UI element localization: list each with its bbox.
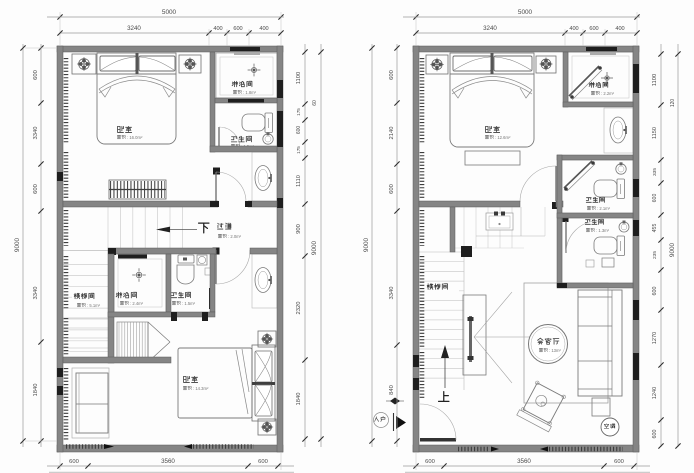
svg-text:: 12.6m²: : 12.6m² xyxy=(495,135,511,140)
svg-text:600: 600 xyxy=(389,70,395,80)
svg-text:3240: 3240 xyxy=(483,25,497,32)
svg-text:9000: 9000 xyxy=(669,242,676,257)
svg-text:: 14.3m²: : 14.3m² xyxy=(193,386,209,391)
svg-text:60: 60 xyxy=(312,100,318,106)
svg-text:600: 600 xyxy=(296,126,302,135)
svg-text:: 2.1m²: : 2.1m² xyxy=(597,206,611,211)
svg-text:400: 400 xyxy=(259,26,268,32)
svg-text:600: 600 xyxy=(33,70,39,80)
svg-text:: 1.3m²: : 1.3m² xyxy=(596,228,610,233)
svg-text:5000: 5000 xyxy=(518,9,533,16)
svg-text:2320: 2320 xyxy=(296,302,302,315)
svg-text:: 2.4m²: : 2.4m² xyxy=(130,301,144,306)
svg-text:600: 600 xyxy=(258,459,268,465)
svg-text:600: 600 xyxy=(652,287,658,296)
svg-text:3240: 3240 xyxy=(127,25,141,32)
svg-text:600: 600 xyxy=(69,459,79,465)
svg-text:600: 600 xyxy=(425,459,435,465)
svg-text:2140: 2140 xyxy=(389,127,395,140)
svg-text:: 13m²: : 13m² xyxy=(549,348,561,353)
svg-text:600: 600 xyxy=(652,194,658,203)
svg-text:175: 175 xyxy=(296,146,301,154)
svg-text:900: 900 xyxy=(296,224,302,234)
svg-text:600: 600 xyxy=(389,184,395,194)
svg-text:1840: 1840 xyxy=(296,393,302,406)
svg-text:: 16.0m²: : 16.0m² xyxy=(127,135,143,140)
svg-text:: 2.2m²: : 2.2m² xyxy=(601,91,615,96)
svg-text:1840: 1840 xyxy=(33,384,39,397)
svg-text:400: 400 xyxy=(213,26,222,32)
svg-text:3340: 3340 xyxy=(33,127,39,140)
svg-text:1100: 1100 xyxy=(652,74,658,86)
svg-text:1270: 1270 xyxy=(652,332,658,344)
svg-text:335: 335 xyxy=(652,168,658,176)
svg-text:1150: 1150 xyxy=(652,127,658,139)
svg-text:3340: 3340 xyxy=(389,287,395,300)
svg-text:600: 600 xyxy=(652,430,658,439)
svg-text:1110: 1110 xyxy=(296,175,302,187)
svg-text:175: 175 xyxy=(296,108,301,116)
svg-text:9000: 9000 xyxy=(311,240,318,255)
svg-text:600: 600 xyxy=(33,184,39,194)
svg-text:3560: 3560 xyxy=(161,458,175,465)
svg-text:235: 235 xyxy=(652,251,658,259)
svg-text:5000: 5000 xyxy=(162,9,177,16)
svg-text:3560: 3560 xyxy=(517,458,531,465)
svg-text:9000: 9000 xyxy=(14,237,21,252)
svg-text:: 5.1m²: : 5.1m² xyxy=(87,303,101,308)
svg-text:400: 400 xyxy=(569,26,578,32)
svg-text:600: 600 xyxy=(614,459,624,465)
svg-text:3340: 3340 xyxy=(33,287,39,300)
svg-text:9000: 9000 xyxy=(363,237,370,252)
svg-text:400: 400 xyxy=(615,26,624,32)
svg-text:600: 600 xyxy=(589,26,598,32)
svg-text:: 2.0m²: : 2.0m² xyxy=(228,234,242,239)
svg-text:1240: 1240 xyxy=(652,387,658,399)
svg-text:1100: 1100 xyxy=(296,72,302,84)
svg-text:120: 120 xyxy=(670,99,676,108)
svg-text:455: 455 xyxy=(652,224,658,233)
svg-text:: 1.5m²: : 1.5m² xyxy=(182,301,196,306)
svg-text:: 1.8m²: : 1.8m² xyxy=(243,90,257,95)
svg-text:840: 840 xyxy=(389,385,395,395)
svg-text:600: 600 xyxy=(233,26,242,32)
